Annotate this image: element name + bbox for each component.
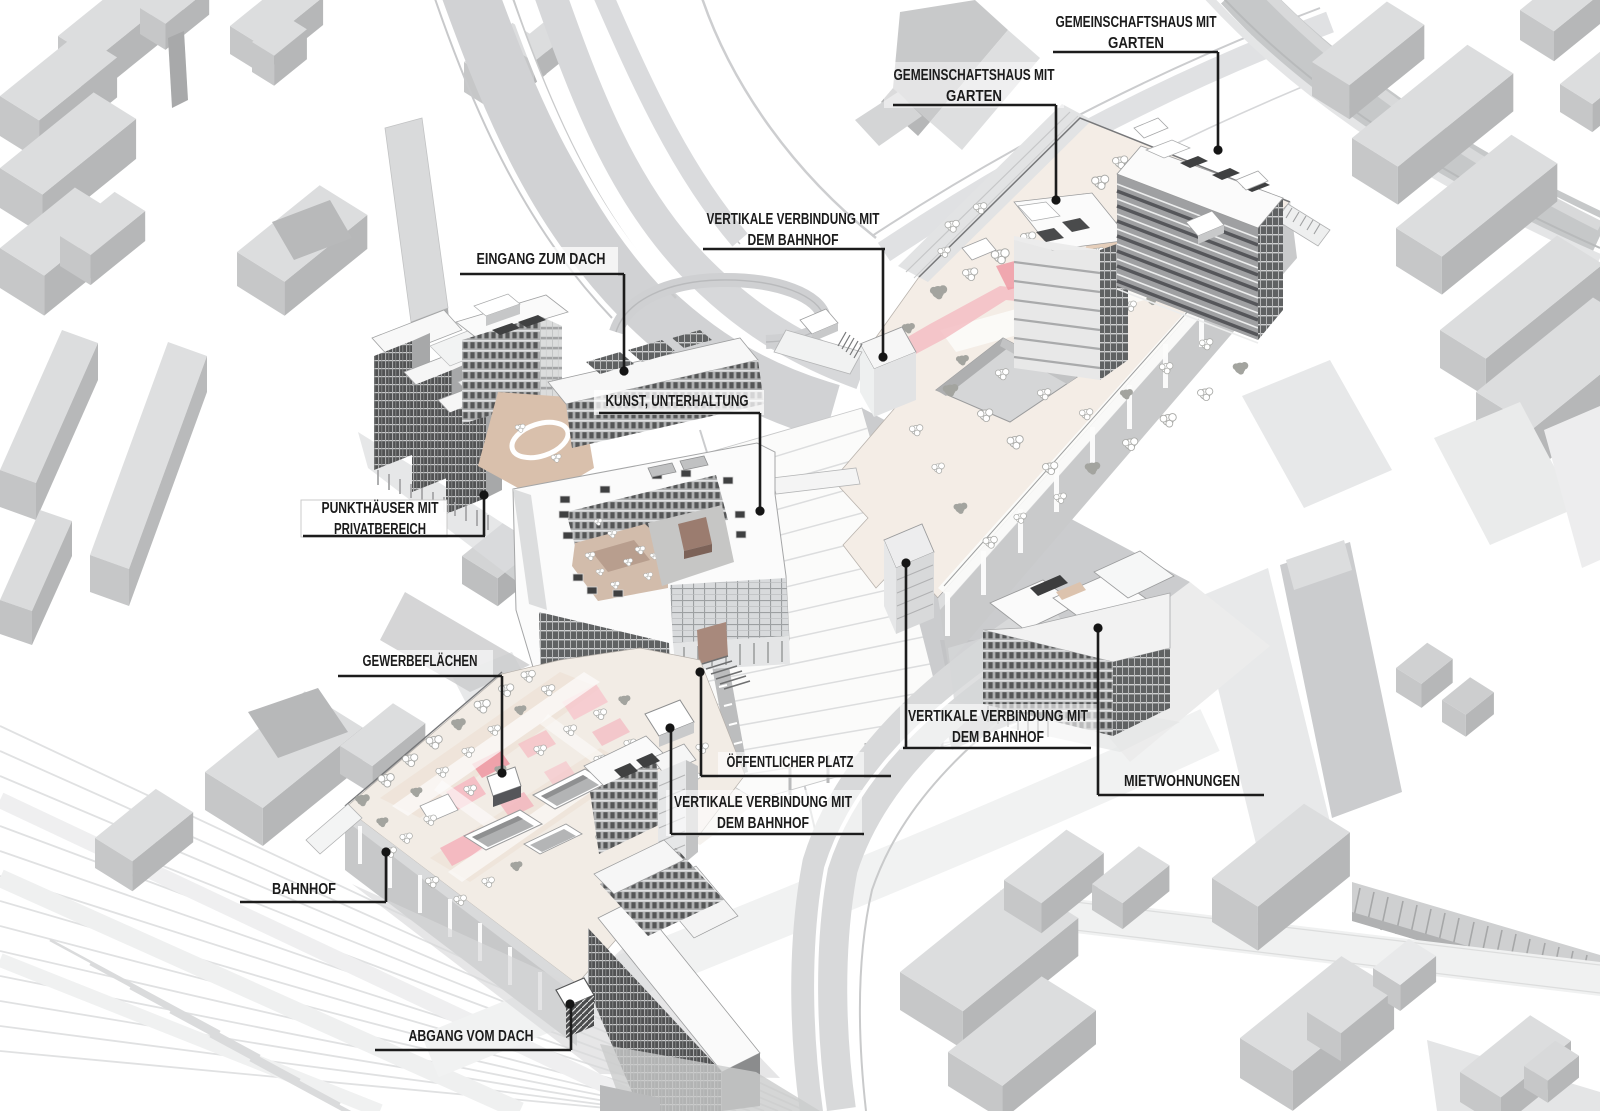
svg-text:GEWERBEFLÄCHEN: GEWERBEFLÄCHEN (363, 653, 478, 670)
svg-text:ÖFFENTLICHER PLATZ: ÖFFENTLICHER PLATZ (727, 754, 854, 771)
svg-text:ABGANG VOM DACH: ABGANG VOM DACH (409, 1028, 534, 1045)
svg-text:PUNKTHÄUSER MIT: PUNKTHÄUSER MIT (322, 500, 439, 517)
svg-text:VERTIKALE VERBINDUNG MIT: VERTIKALE VERBINDUNG MIT (908, 708, 1088, 725)
svg-text:MIETWOHNUNGEN: MIETWOHNUNGEN (1124, 773, 1240, 790)
svg-text:GEMEINSCHAFTSHAUS MIT: GEMEINSCHAFTSHAUS MIT (1056, 14, 1217, 31)
svg-text:DEM BAHNHOF: DEM BAHNHOF (717, 815, 809, 832)
svg-text:DEM BAHNHOF: DEM BAHNHOF (748, 232, 839, 249)
svg-text:GARTEN: GARTEN (946, 88, 1002, 105)
svg-text:VERTIKALE VERBINDUNG MIT: VERTIKALE VERBINDUNG MIT (707, 211, 880, 228)
svg-text:DEM BAHNHOF: DEM BAHNHOF (952, 729, 1044, 746)
svg-text:EINGANG ZUM DACH: EINGANG ZUM DACH (477, 251, 606, 268)
svg-text:GARTEN: GARTEN (1108, 35, 1164, 52)
svg-text:VERTIKALE VERBINDUNG MIT: VERTIKALE VERBINDUNG MIT (674, 794, 852, 811)
svg-text:BAHNHOF: BAHNHOF (272, 881, 336, 898)
svg-text:KUNST, UNTERHALTUNG: KUNST, UNTERHALTUNG (606, 393, 749, 410)
svg-text:GEMEINSCHAFTSHAUS MIT: GEMEINSCHAFTSHAUS MIT (894, 67, 1055, 84)
